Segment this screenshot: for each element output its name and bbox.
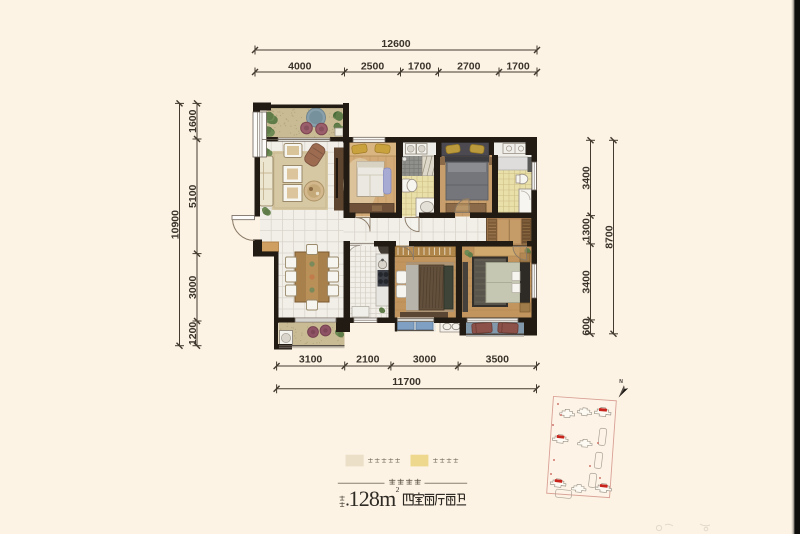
svg-text:1200: 1200 — [187, 322, 199, 346]
svg-text:12600: 12600 — [381, 38, 410, 50]
svg-text:128m: 128m — [349, 486, 397, 511]
svg-text:1600: 1600 — [187, 109, 199, 133]
svg-text:5100: 5100 — [187, 184, 199, 208]
svg-text:1700: 1700 — [506, 61, 530, 73]
svg-text:3000: 3000 — [187, 275, 199, 299]
svg-text:11700: 11700 — [392, 376, 421, 388]
svg-text:3100: 3100 — [299, 354, 323, 366]
svg-text:3400: 3400 — [581, 166, 593, 190]
svg-text:3400: 3400 — [581, 270, 593, 294]
svg-text:10900: 10900 — [170, 210, 182, 239]
svg-text:1700: 1700 — [408, 61, 432, 73]
svg-text:1300: 1300 — [580, 218, 592, 242]
svg-text:4000: 4000 — [288, 61, 312, 73]
svg-text:2500: 2500 — [361, 61, 385, 73]
svg-text:600: 600 — [581, 318, 593, 336]
svg-text:2700: 2700 — [457, 61, 481, 73]
svg-text:N: N — [619, 379, 623, 385]
svg-text:2: 2 — [396, 485, 400, 494]
svg-text:3000: 3000 — [413, 354, 437, 366]
svg-text:2100: 2100 — [356, 354, 380, 366]
svg-text:3500: 3500 — [486, 354, 510, 366]
svg-text:8700: 8700 — [604, 225, 616, 249]
